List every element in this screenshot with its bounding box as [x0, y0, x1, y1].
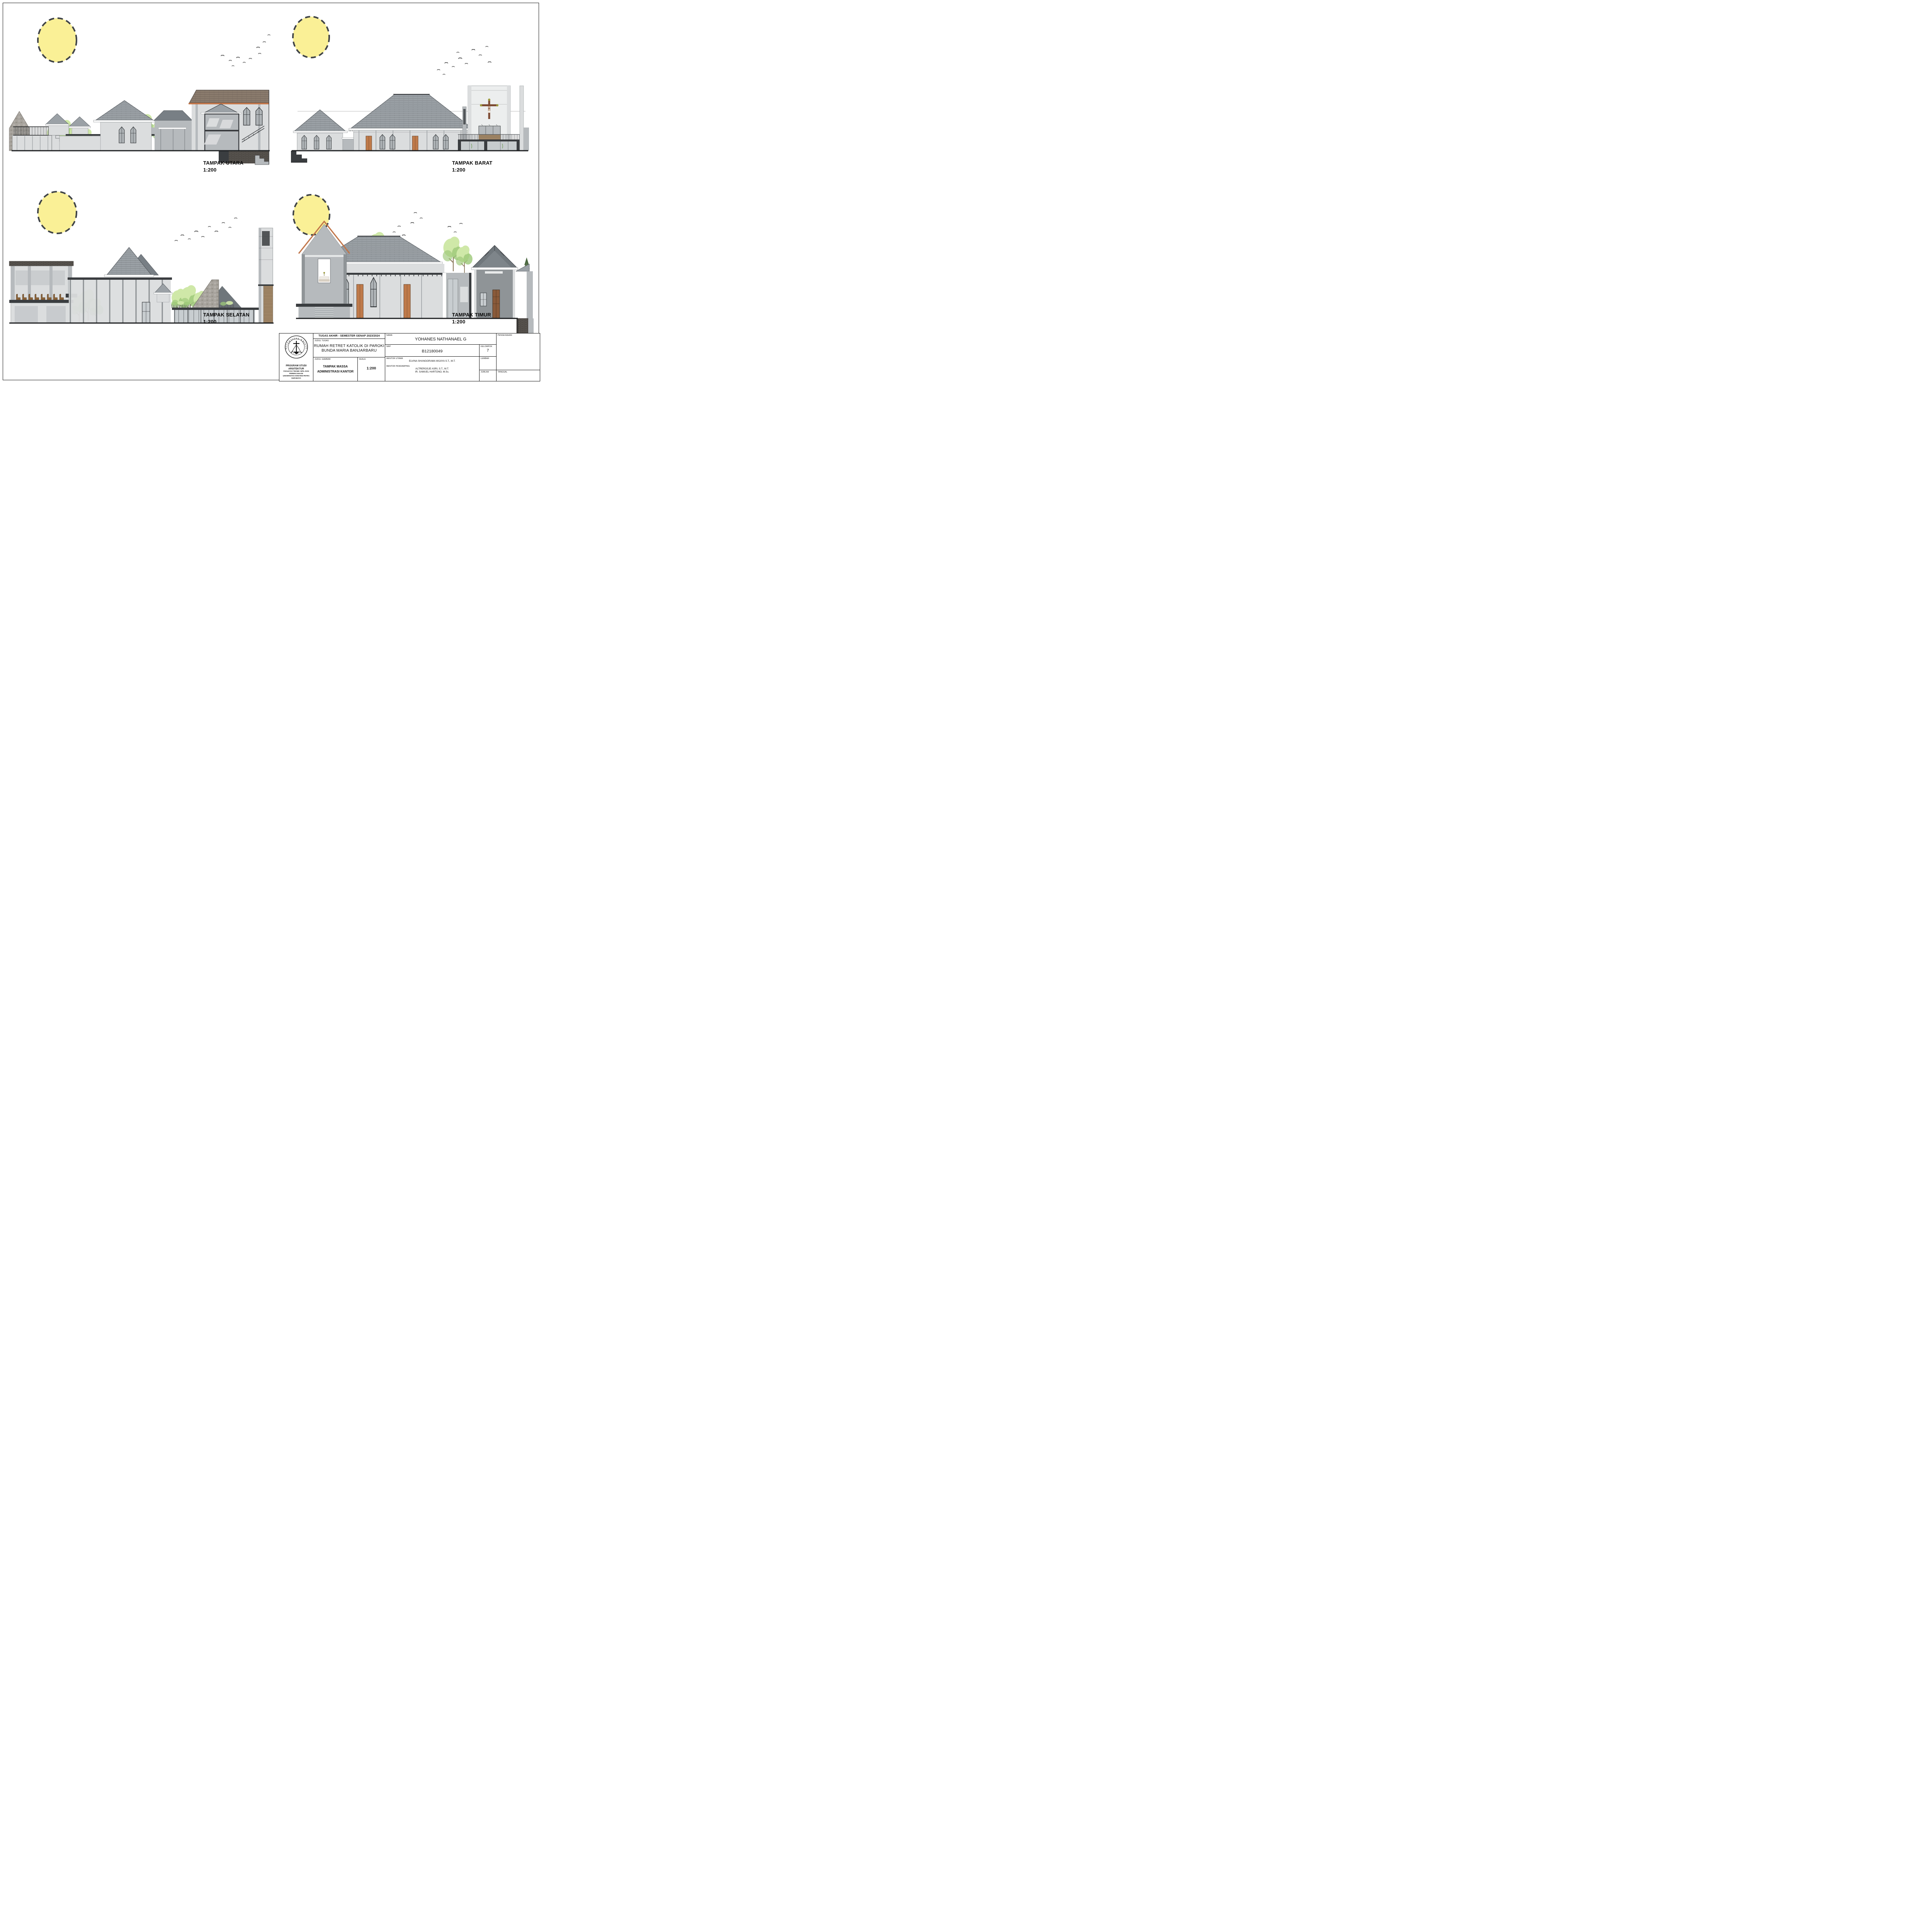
sun-icon: [38, 18, 77, 62]
date-cell: TANGGAL: [497, 370, 540, 381]
drawing-title-cell: JUDUL GAMBAR TAMPAK MASSA ADMINISTRASI K…: [313, 357, 358, 381]
mentors-cell: MENTOR UTAMA ELVINA SHANGGRAMA WIJAYA S.…: [385, 357, 480, 381]
student-id-cell: NRP B12180049: [385, 345, 480, 357]
jumlah-label: JUMLAH: [480, 370, 496, 373]
university-logo: UNIVERSITAS KRISTEN PETRA: [279, 334, 313, 360]
elevation-title: TAMPAK TIMUR: [452, 311, 491, 318]
project-title-cell: JUDUL TUGAS RUMAH RETRET KATOLIK DI PARO…: [313, 339, 385, 357]
judul-tugas-label: JUDUL TUGAS: [313, 339, 385, 342]
mentor-pendamping-name1: ALTREROSJE ASRI, S.T., M.T.: [385, 367, 479, 371]
student-id: B12180049: [385, 349, 479, 354]
elevation-label-north: TAMPAK UTARA 1:200: [203, 160, 243, 173]
faculty-name: FAKULTAS TEKNIK SIPIL DAN PERENCANAAN: [279, 370, 313, 375]
drawing-sheet: TAMPAK UTARA 1:200 TAMPAK BARAT 1:200 TA…: [0, 0, 542, 383]
judul-gambar-label: JUDUL GAMBAR: [313, 357, 357, 361]
approval-cell: PENGESAHAN: [497, 333, 540, 370]
elevation-title: TAMPAK SELATAN: [203, 311, 250, 318]
sun-icon: [38, 192, 77, 233]
elevation-label-west: TAMPAK BARAT 1:200: [452, 160, 492, 173]
building-elevation: [9, 90, 270, 165]
mentor-utama-name: ELVINA SHANGGRAMA WIJAYA S.T., M.T.: [385, 360, 479, 363]
assignment-header: TUGAS AKHIR - SEMESTER GENAP 2023/2024: [318, 335, 380, 337]
student-name-cell: NAMA YOHANES NATHANAEL G: [385, 333, 497, 345]
nrp-label: NRP: [385, 345, 479, 348]
student-name: YOHANES NATHANAEL G: [385, 337, 496, 342]
elevation-scale: 1:200: [452, 318, 491, 325]
elevation-label-south: TAMPAK SELATAN 1:200: [203, 311, 250, 325]
mentor-pendamping-label: MENTOR PENDAMPING: [385, 364, 479, 367]
project-title-line2: BUNDA MARIA BANJARBARU: [321, 349, 377, 353]
elevation-west-drawing: [276, 12, 535, 172]
building-elevation: [291, 86, 529, 162]
assignment-header-cell: TUGAS AKHIR - SEMESTER GENAP 2023/2024: [313, 333, 385, 339]
elevation-south-drawing: [8, 189, 274, 350]
nama-label: NAMA: [385, 333, 496, 337]
drawing-title-line2: ADMINISTRASI KANTOR: [317, 369, 354, 374]
mentor-utama-label: MENTOR UTAMA: [385, 357, 479, 360]
sheet-count-cell: JUMLAH: [480, 370, 497, 381]
group-cell: KELOMPOK 7: [480, 345, 497, 357]
birds-icon: [437, 46, 491, 75]
sheet-number-cell: LEMBAR: [480, 357, 497, 370]
mentor-pendamping-name2: IR. SAMUEL HARTONO, M.Sc.: [385, 371, 479, 374]
birds-icon: [221, 35, 270, 66]
institution-cell: UNIVERSITAS KRISTEN PETRA PROGRAM STU: [279, 333, 313, 381]
birds-icon: [175, 218, 237, 241]
city-name: SURABAYA: [279, 377, 313, 379]
drawing-title-line1: TAMPAK MASSA: [323, 364, 348, 369]
elevation-title: TAMPAK UTARA: [203, 160, 243, 167]
building-elevation: [296, 221, 534, 346]
program-name: PROGRAM STUDI ARSITEKTUR: [279, 364, 313, 370]
title-block: UNIVERSITAS KRISTEN PETRA PROGRAM STU: [279, 333, 540, 381]
lembar-label: LEMBAR: [480, 357, 496, 360]
tanggal-label: TANGGAL: [497, 370, 540, 373]
elevation-north-drawing: [8, 12, 274, 172]
elevation-title: TAMPAK BARAT: [452, 160, 492, 167]
elevation-scale: 1:200: [203, 167, 243, 173]
institution-text: PROGRAM STUDI ARSITEKTUR FAKULTAS TEKNIK…: [279, 364, 313, 379]
elevation-east-drawing: [276, 189, 535, 350]
skala-label: SKALA: [358, 357, 385, 361]
group-number: 7: [480, 349, 496, 353]
project-title-line1: RUMAH RETRET KATOLIK DI PAROKI: [314, 344, 384, 349]
building-elevation: [9, 228, 274, 323]
kelompok-label: KELOMPOK: [480, 345, 496, 348]
scale-value: 1:200: [367, 366, 376, 371]
elevation-scale: 1:200: [203, 318, 250, 325]
scale-cell: SKALA 1:200: [358, 357, 385, 381]
elevation-scale: 1:200: [452, 167, 492, 173]
sun-icon: [293, 17, 329, 58]
elevation-label-east: TAMPAK TIMUR 1:200: [452, 311, 491, 325]
pengesahan-label: PENGESAHAN: [497, 333, 540, 337]
